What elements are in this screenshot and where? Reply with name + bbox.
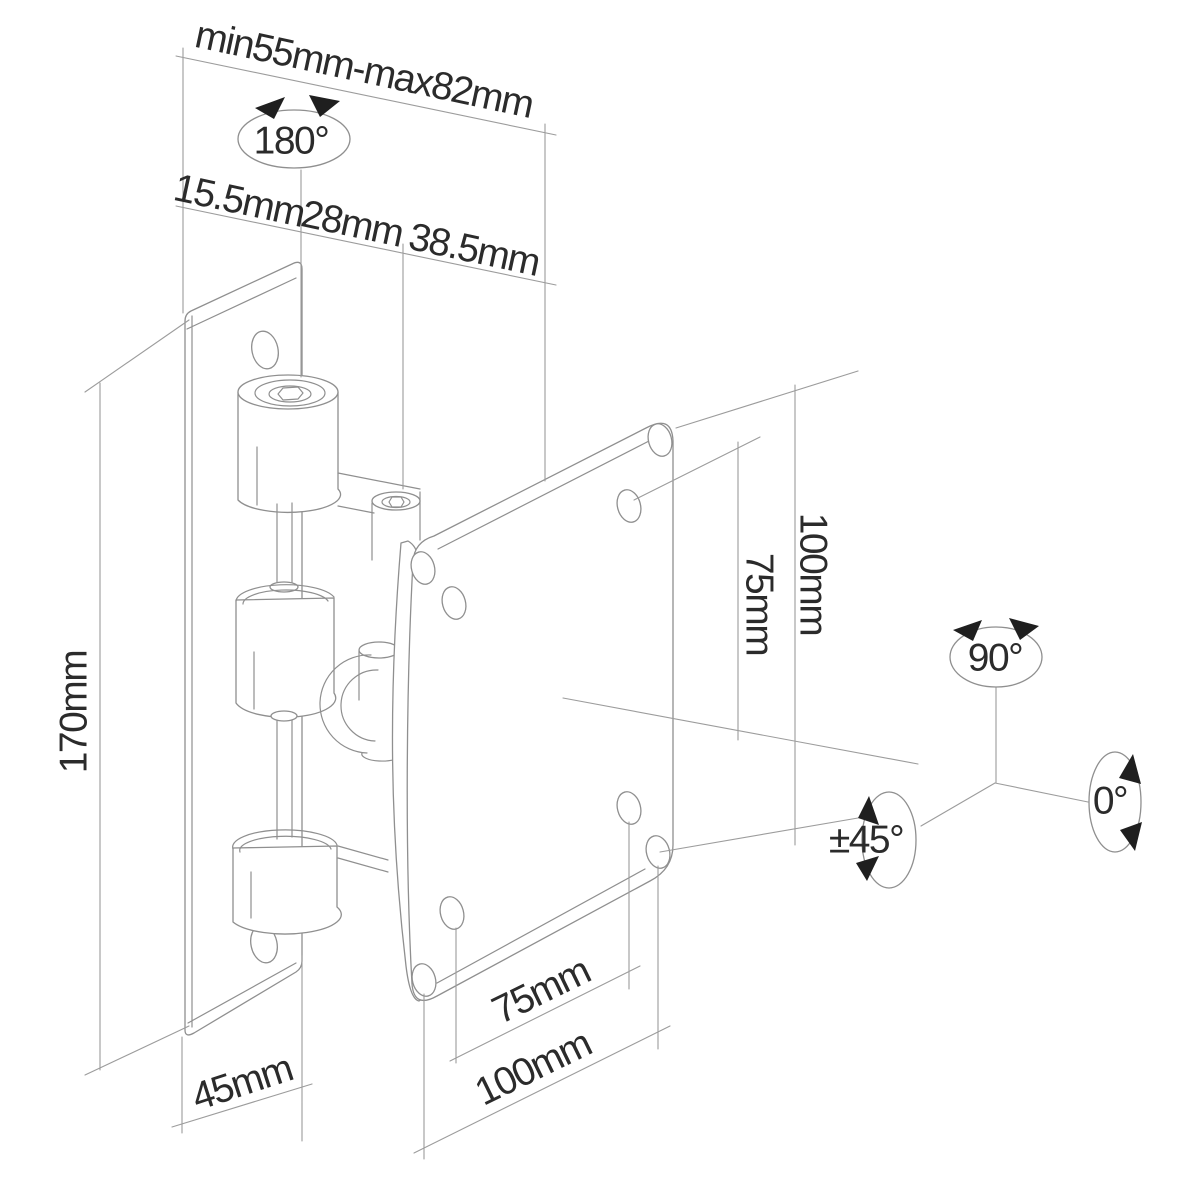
wall-mount-diagram: min55mm-max82mm 15.5mm 28mm 38.5mm 170mm… [0, 0, 1200, 1200]
dim-left-height-lines [85, 320, 189, 1075]
bracket-parts [185, 262, 675, 1035]
dim-bottom-inner-label: 75mm [486, 949, 597, 1033]
angle-up-90-label: 90° [968, 637, 1022, 680]
dim-bottom-outer-label: 100mm [469, 1022, 598, 1114]
hinge-knuckle-top [238, 392, 341, 512]
angle-pan-180-label: 180° [254, 120, 329, 163]
dim-bottom-depth-label: 45mm [187, 1047, 298, 1120]
hinge-column [233, 375, 342, 934]
dim-left-height-label: 170mm [53, 651, 96, 774]
dim-right-outer-label: 100mm [792, 513, 835, 636]
rotate-arrow-icon [1120, 822, 1142, 851]
angle-neutral-0-label: 0° [1093, 780, 1127, 823]
dim-segment-28-label: 28mm [297, 192, 406, 255]
rotation-axes [921, 687, 1088, 826]
dim-segment-155-label: 15.5mm [170, 166, 308, 235]
rotate-arrow-icon [309, 95, 340, 117]
technical-drawing-canvas: min55mm-max82mm 15.5mm 28mm 38.5mm 170mm… [0, 0, 1200, 1200]
arm-bottom-link [338, 846, 388, 872]
dim-segment-385-label: 38.5mm [405, 215, 543, 284]
dim-right-inner-label: 75mm [738, 553, 781, 655]
angle-tilt-45-label: ±45° [829, 819, 903, 862]
